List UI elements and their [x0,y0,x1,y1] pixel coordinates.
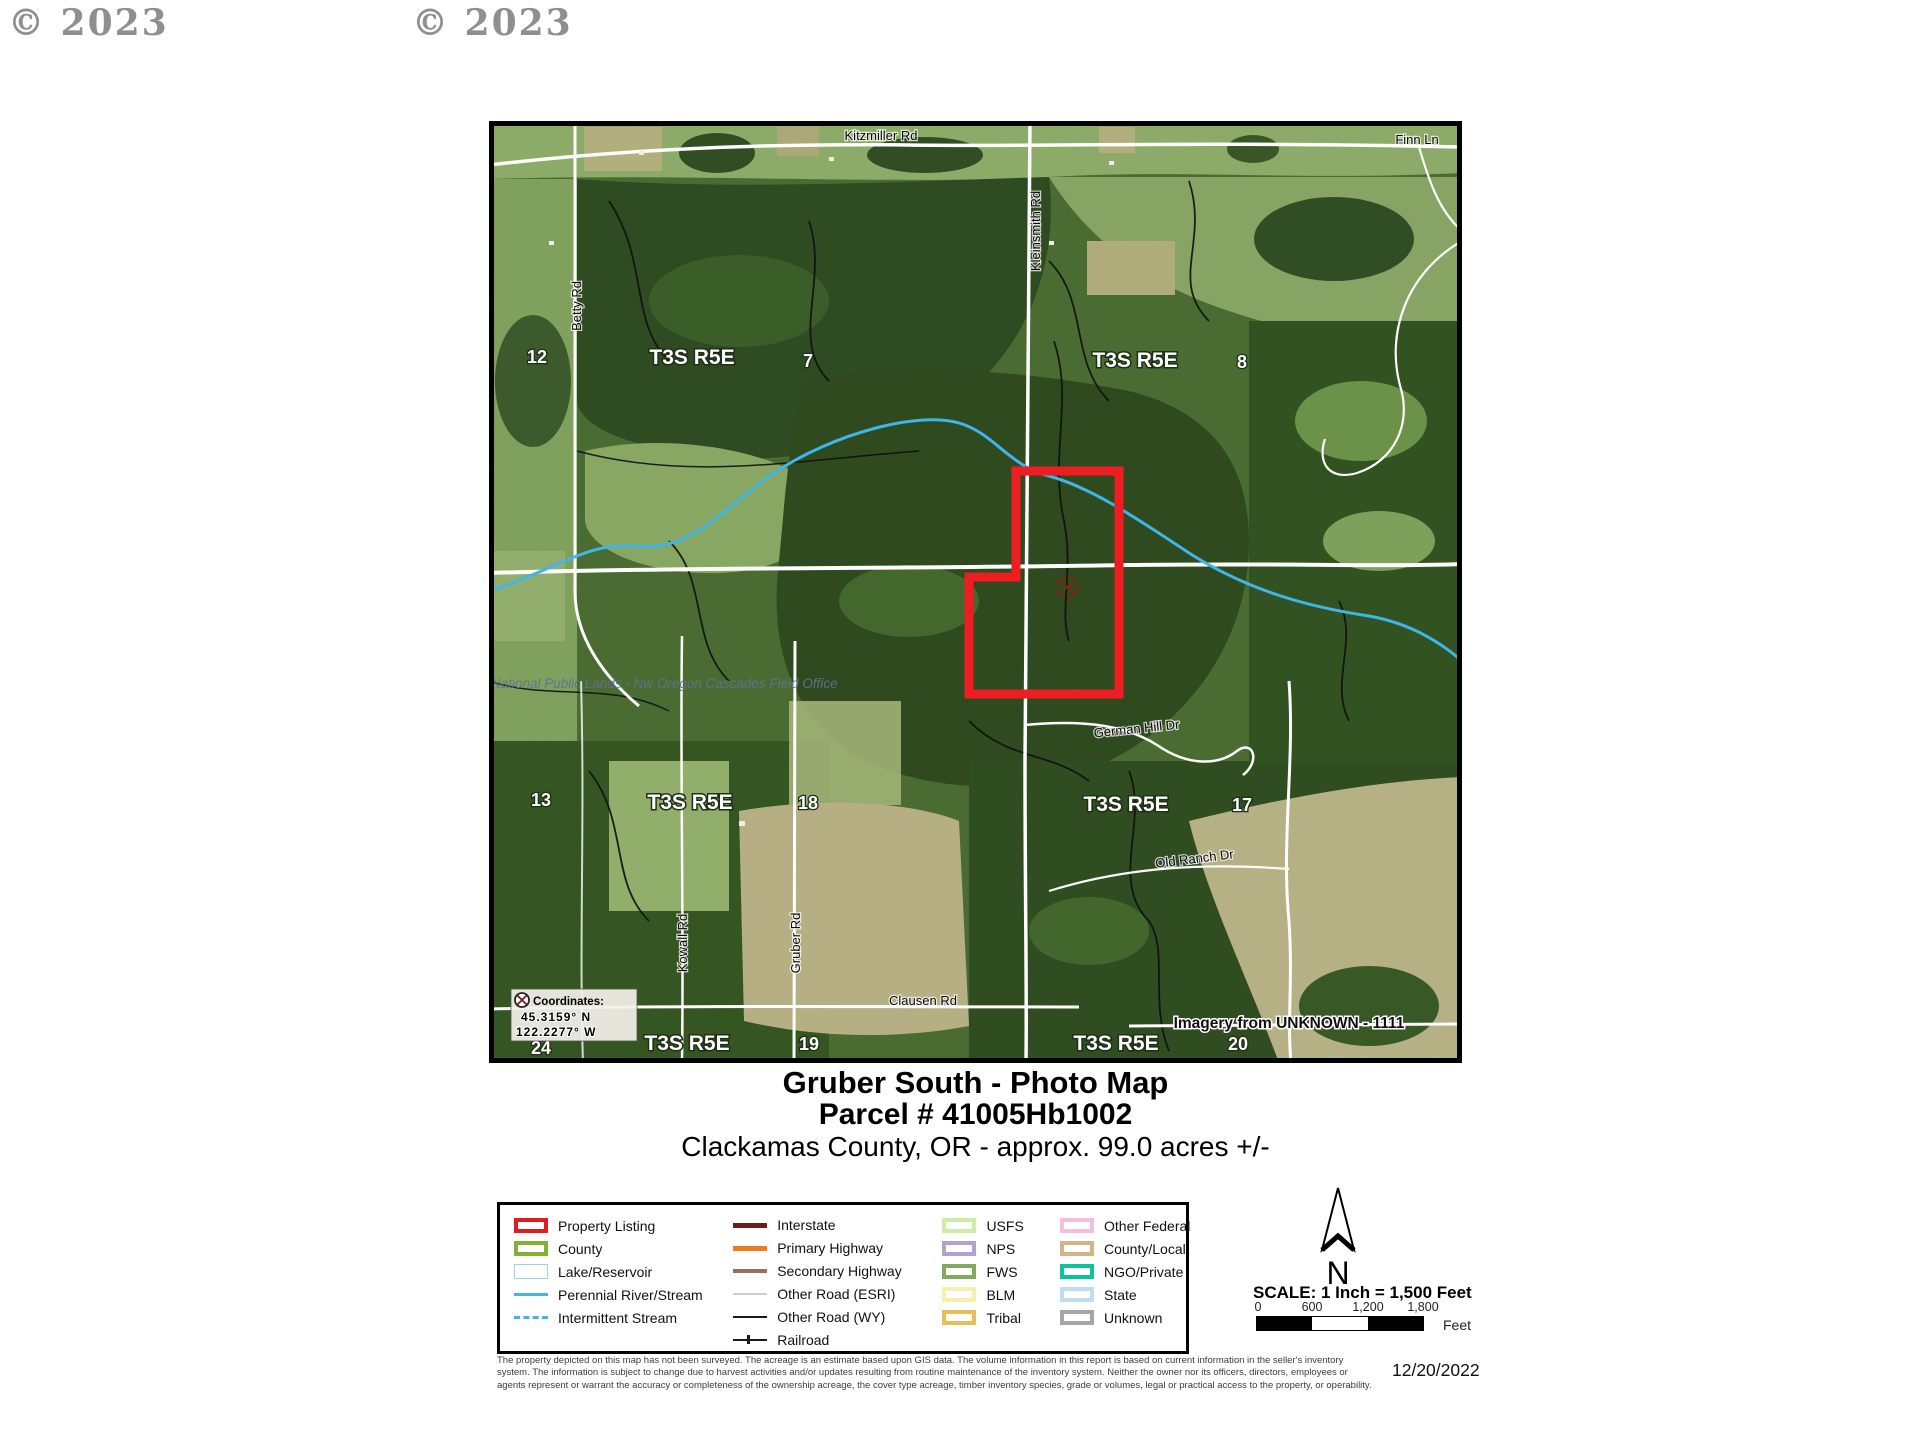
legend-label: Secondary Highway [777,1263,902,1279]
legend-item: Primary Highway [733,1237,942,1260]
legend-item: County/Local [1060,1237,1186,1260]
legend-label: Lake/Reservoir [558,1264,652,1280]
map-date: 12/20/2022 [1392,1360,1480,1381]
page: { "copyright": { "one": "© 2023", "two":… [0,0,1920,1440]
legend-label: NPS [986,1241,1015,1257]
legend-column-federal2: Other Federal County/Local NGO/Private S… [1060,1214,1186,1351]
photo-map: Kitzmiller Rd Finn Ln Kleinsmith Rd Bett… [489,121,1462,1063]
parcel-number: Parcel # 41005Hb1002 [489,1099,1462,1131]
legend-item: NGO/Private [1060,1260,1186,1283]
intermittent-stream-symbol [514,1316,548,1319]
legend-label: Tribal [986,1310,1021,1326]
legend-label: County [558,1241,602,1257]
legend-item: Tribal [942,1306,1060,1329]
scale-bar-segment [1368,1317,1423,1330]
property-listing-swatch [514,1218,548,1233]
legend-label: USFS [986,1218,1023,1234]
copyright-watermark: © 2023 [8,2,169,44]
legend-item: FWS [942,1260,1060,1283]
blm-swatch [942,1287,976,1302]
section-number: 17 [1232,795,1252,815]
scale-bar-segment [1257,1317,1312,1330]
ngo-private-swatch [1060,1264,1094,1279]
public-lands-watermark: National Public Lands - Nw Oregon Cascad… [491,676,838,691]
road-label-gruber: Gruber Rd [788,913,803,974]
legend-label: Railroad [777,1332,829,1348]
other-road-wy-symbol [733,1316,767,1318]
township-label: T3S R5E [647,791,732,814]
aerial-map-svg: Kitzmiller Rd Finn Ln Kleinsmith Rd Bett… [489,121,1462,1063]
lake-swatch [514,1264,548,1279]
legend-item: Interstate [733,1214,942,1237]
usfs-swatch [942,1218,976,1233]
legend-item: Other Road (WY) [733,1305,942,1328]
tribal-swatch [942,1310,976,1325]
county-swatch [514,1241,548,1256]
imagery-credit: Imagery from UNKNOWN - 1111 [1174,1015,1405,1032]
legend-label: County/Local [1104,1241,1186,1257]
section-number: 12 [527,347,547,367]
road-label-clausen: Clausen Rd [889,993,957,1008]
legend-item: Intermittent Stream [514,1306,733,1329]
aerial-terrain [489,121,1462,1063]
scale-tick: 600 [1302,1300,1323,1314]
legend-label: NGO/Private [1104,1264,1183,1280]
legend-item: Railroad [733,1328,942,1351]
scale-tick: 1,800 [1407,1300,1438,1314]
legend-column-federal1: USFS NPS FWS BLM Tribal [942,1214,1060,1351]
legend-label: Other Road (WY) [777,1309,885,1325]
township-label: T3S R5E [1073,1032,1158,1055]
road-label-kleinsmith: Kleinsmith Rd [1028,191,1043,271]
legend-item: Secondary Highway [733,1260,942,1283]
other-federal-swatch [1060,1218,1094,1233]
legend-item: Other Road (ESRI) [733,1282,942,1305]
unknown-swatch [1060,1310,1094,1325]
county-acreage: Clackamas County, OR - approx. 99.0 acre… [489,1131,1462,1163]
legend-item: BLM [942,1283,1060,1306]
legend-item: Perennial River/Stream [514,1283,733,1306]
section-number: 8 [1237,352,1247,372]
section-number: 18 [798,793,818,813]
nps-swatch [942,1241,976,1256]
north-arrow: N [1296,1184,1380,1292]
road-label-kowall: Kowall Rd [675,914,690,973]
legend-item: Unknown [1060,1306,1186,1329]
section-number: 19 [799,1034,819,1054]
coordinates-lat: 45.3159° N [521,1010,591,1024]
legend-label: Interstate [777,1217,835,1233]
section-number: 13 [531,790,551,810]
legend-label: Unknown [1104,1310,1162,1326]
scale-bar [1256,1316,1424,1331]
legend-column-areas: Property Listing County Lake/Reservoir P… [514,1214,733,1351]
perennial-stream-symbol [514,1293,548,1296]
road-label-kitzmiller: Kitzmiller Rd [845,128,918,143]
scale-bar-segment [1312,1317,1367,1330]
state-swatch [1060,1287,1094,1302]
township-label: T3S R5E [1092,349,1177,372]
coordinates-title: Coordinates: [533,996,604,1008]
railroad-symbol [733,1339,767,1341]
disclaimer-line: agents represent or warrant the accuracy… [497,1380,1372,1392]
other-road-esri-symbol [733,1293,767,1295]
section-number: 7 [803,351,813,371]
legend-label: Other Federal [1104,1218,1190,1234]
coordinates-lon: 122.2277° W [516,1025,597,1039]
township-label: T3S R5E [649,346,734,369]
legend-item: USFS [942,1214,1060,1237]
legend-item: Lake/Reservoir [514,1260,733,1283]
secondary-highway-symbol [733,1269,767,1273]
scale-tick: 1,200 [1352,1300,1383,1314]
legend-label: Perennial River/Stream [558,1287,703,1303]
interstate-symbol [733,1223,767,1228]
legend-label: State [1104,1287,1137,1303]
legend-item: State [1060,1283,1186,1306]
legend-item: Other Federal [1060,1214,1186,1237]
title-block: Gruber South - Photo Map Parcel # 41005H… [489,1066,1462,1163]
disclaimer: The property depicted on this map has no… [497,1355,1372,1392]
legend-label: FWS [986,1264,1017,1280]
legend-item: County [514,1237,733,1260]
legend-label: Property Listing [558,1218,655,1234]
disclaimer-line: The property depicted on this map has no… [497,1355,1372,1367]
legend: Property Listing County Lake/Reservoir P… [497,1202,1189,1354]
road-label-betty: Betty Rd [569,281,584,331]
county-local-swatch [1060,1241,1094,1256]
primary-highway-symbol [733,1246,767,1251]
section-number: 20 [1228,1034,1248,1054]
fws-swatch [942,1264,976,1279]
legend-label: Primary Highway [777,1240,883,1256]
legend-item: NPS [942,1237,1060,1260]
scale-tick: 0 [1255,1300,1262,1314]
coordinates-box: Coordinates: 45.3159° N 122.2277° W [511,989,637,1041]
township-label: T3S R5E [1083,793,1168,816]
road-label-finn: Finn Ln [1395,132,1438,147]
legend-column-roads: Interstate Primary Highway Secondary Hig… [733,1214,942,1351]
legend-label: BLM [986,1287,1015,1303]
township-label: T3S R5E [644,1032,729,1055]
copyright-watermark: © 2023 [412,2,573,44]
map-title: Gruber South - Photo Map [489,1066,1462,1099]
legend-item: Property Listing [514,1214,733,1237]
disclaimer-line: system. The information is subject to ch… [497,1367,1372,1379]
scale-unit: Feet [1443,1317,1471,1333]
legend-label: Intermittent Stream [558,1310,677,1326]
legend-label: Other Road (ESRI) [777,1286,895,1302]
